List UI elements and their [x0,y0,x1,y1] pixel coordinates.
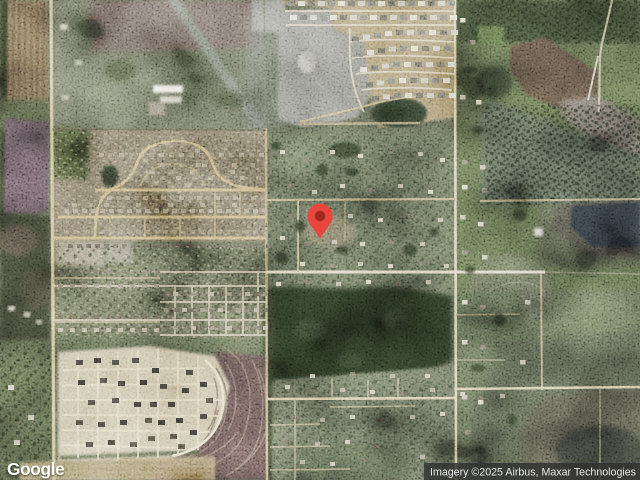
svg-text:Imagery ©2025 Airbus, Maxar Te: Imagery ©2025 Airbus, Maxar Technologies [430,467,636,479]
svg-text:Google: Google [7,459,64,479]
